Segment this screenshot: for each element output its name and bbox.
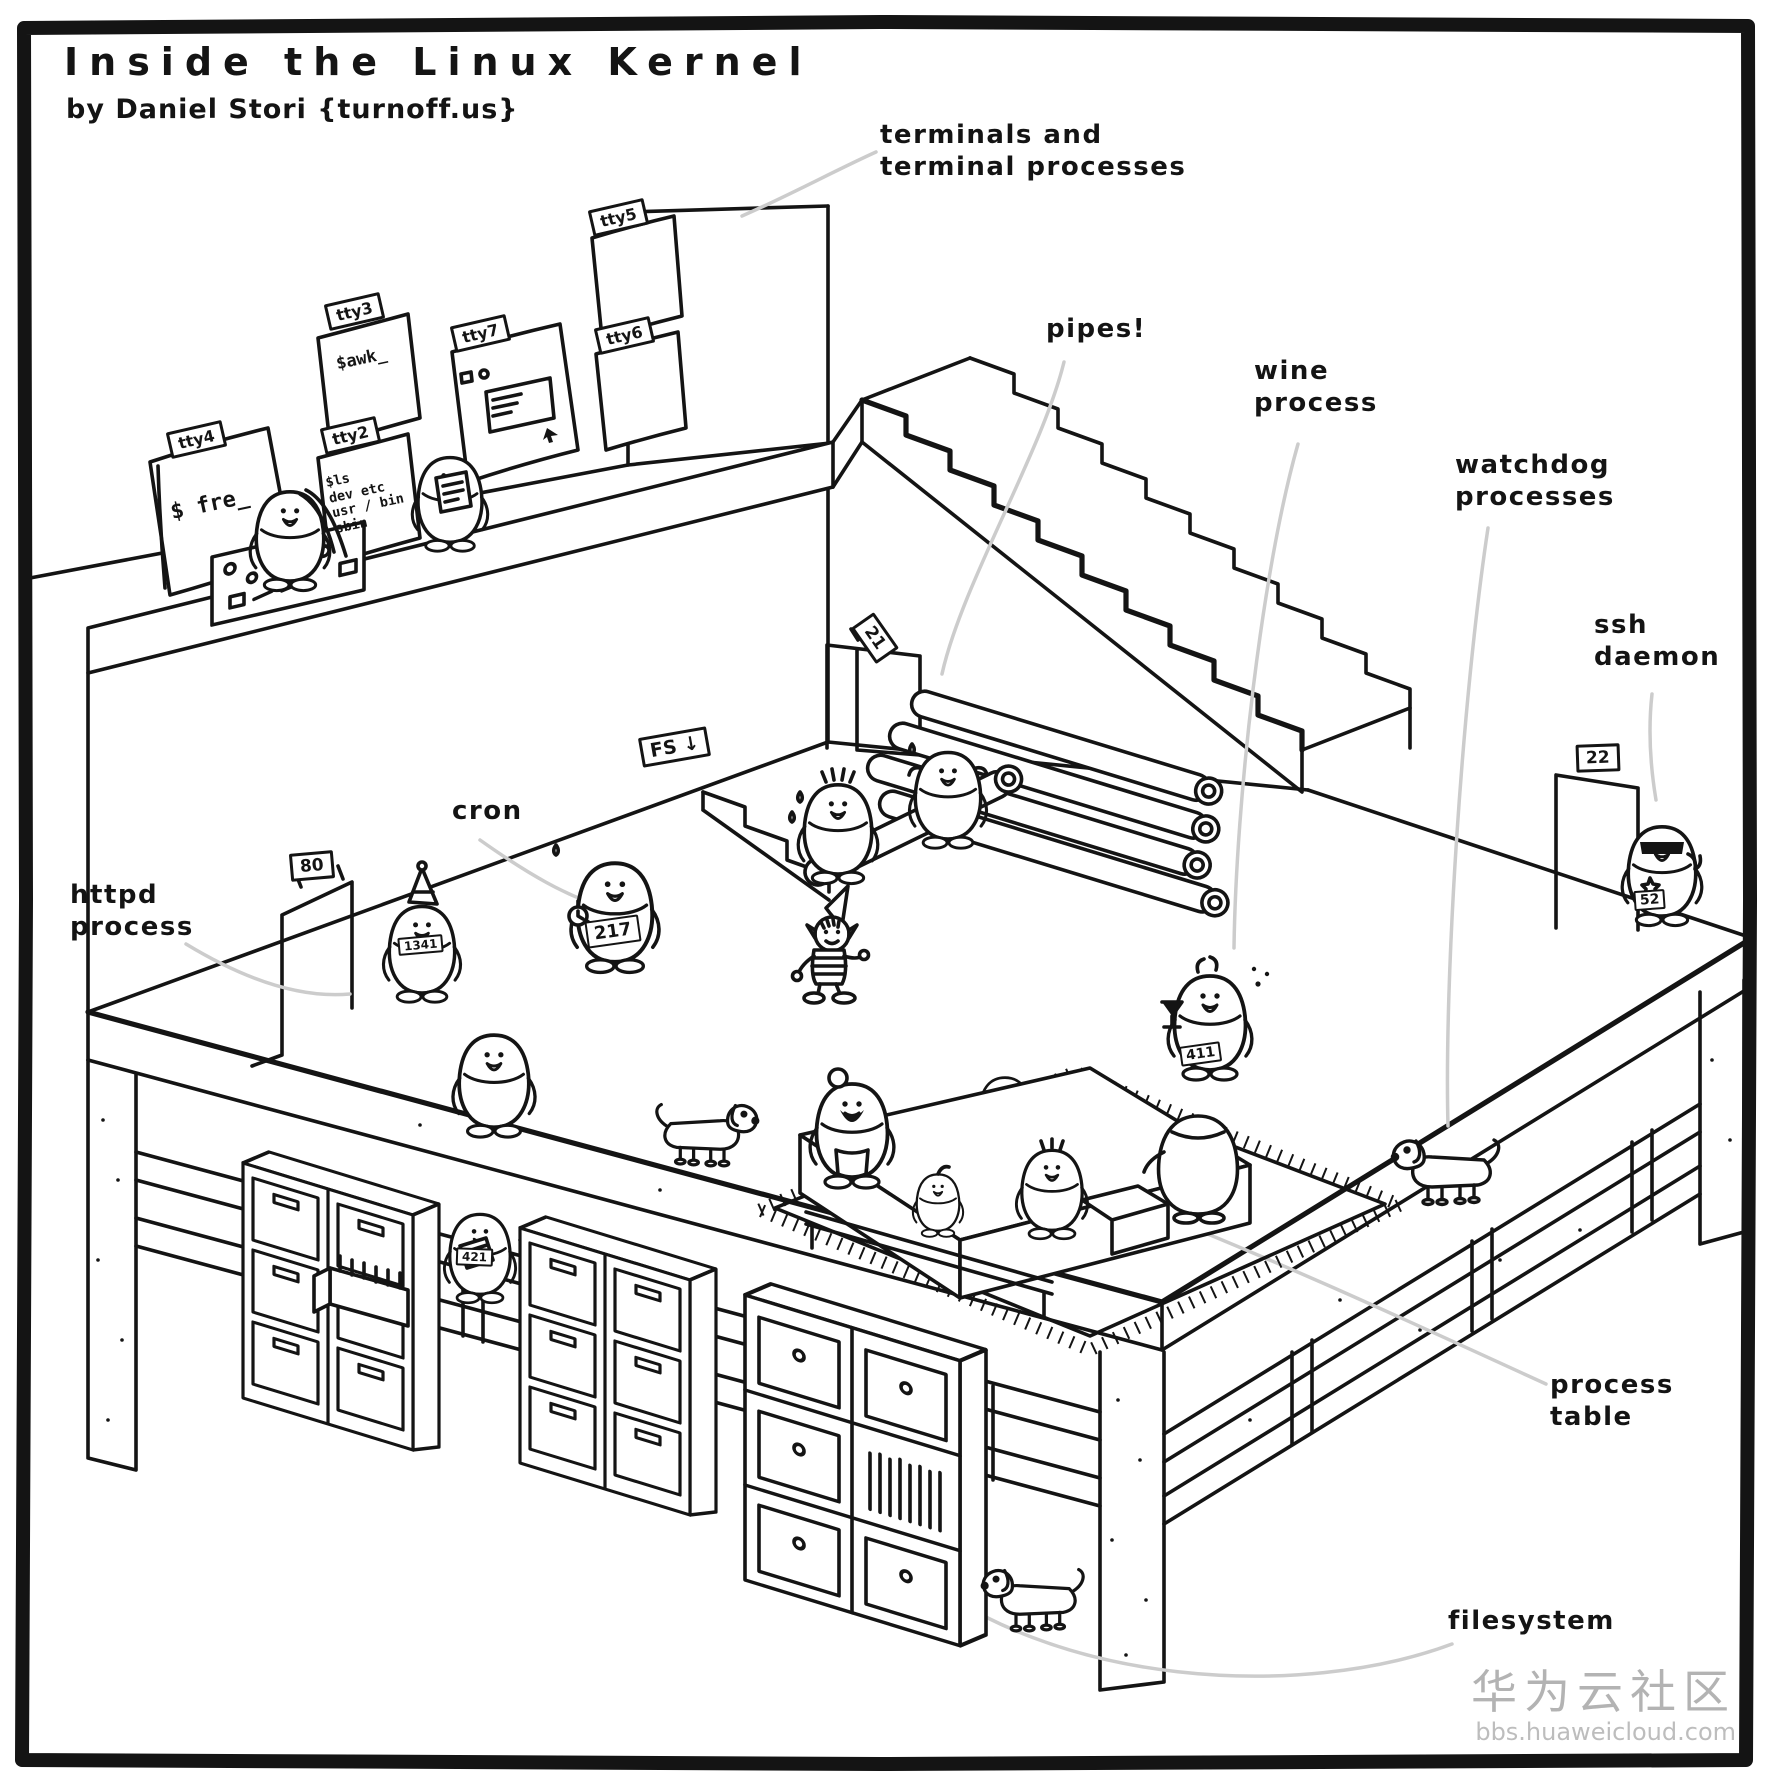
- httpd-penguin: [383, 862, 460, 1002]
- label-ssh-daemon: ssh daemon: [1594, 610, 1720, 673]
- page-title: Inside the Linux Kernel: [64, 40, 812, 84]
- label-terminals: terminals and terminal processes: [880, 120, 1186, 183]
- label-filesystem: filesystem: [1448, 1606, 1615, 1638]
- ssh-penguin: [1622, 827, 1702, 926]
- label-pipes: pipes!: [1046, 314, 1146, 346]
- watermark: 华为云社区 bbs.huaweicloud.com: [1471, 1666, 1736, 1746]
- watermark-site: bbs.huaweicloud.com: [1471, 1719, 1736, 1747]
- puppy-dog: [657, 1105, 758, 1166]
- scene-illustration: [0, 0, 1772, 1786]
- comic-page: Inside the Linux Kernel by Daniel Stori …: [0, 0, 1772, 1786]
- storage-shelf: [745, 1276, 986, 1654]
- ssh-pid-badge: 52: [1633, 889, 1666, 911]
- idle-penguin: [453, 1035, 535, 1137]
- staircase: [862, 358, 1410, 792]
- label-cron: cron: [452, 796, 523, 828]
- watchdog-dog: [1392, 1140, 1498, 1205]
- page-byline: by Daniel Stori {turnoff.us}: [66, 94, 519, 125]
- port-22-sign: 22: [1576, 743, 1621, 773]
- port-80-sign: 80: [289, 850, 335, 882]
- label-watchdog-processes: watchdog processes: [1455, 450, 1615, 513]
- label-wine-process: wine process: [1254, 356, 1378, 419]
- cron-penguin: [554, 845, 659, 972]
- watermark-brand: 华为云社区: [1471, 1666, 1736, 1719]
- label-process-table: process table: [1550, 1370, 1674, 1433]
- filesystem-pid-badge: 421: [456, 1247, 494, 1266]
- elf: [793, 886, 869, 1003]
- label-httpd-process: httpd process: [70, 880, 194, 943]
